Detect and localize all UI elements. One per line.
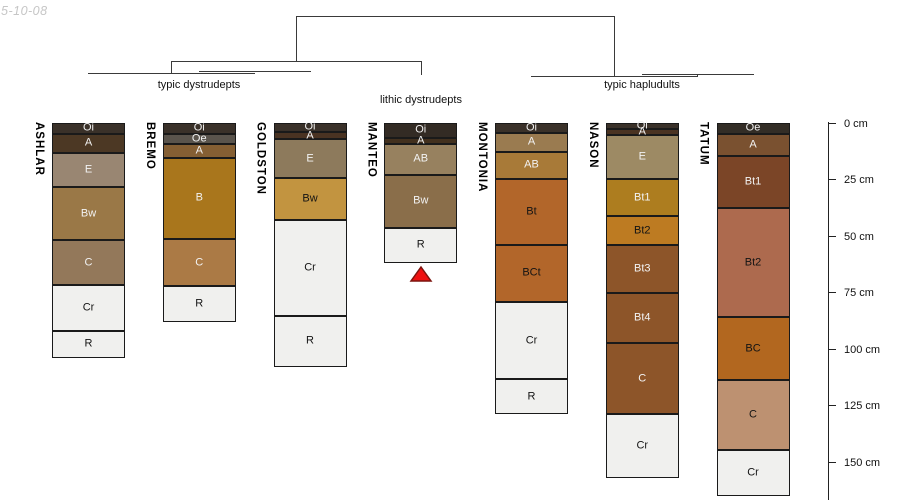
horizon-label: Oi [526, 122, 537, 133]
depth-axis-tick-label: 75 cm [844, 287, 874, 299]
horizon-label: Bt2 [634, 225, 651, 236]
depth-axis-tick-label: 50 cm [844, 231, 874, 243]
group-label-typic-hapludults: typic hapludults [604, 79, 680, 91]
depth-axis-tick [828, 292, 836, 293]
horizon-label: Bw [413, 196, 428, 207]
horizon-label: A [528, 137, 535, 148]
dendrogram-left-cluster-line [171, 61, 422, 62]
horizon-label: Oe [192, 133, 207, 144]
dendrogram-right-vertical [614, 16, 615, 76]
horizon-label: B [196, 193, 203, 204]
depth-axis-tick-label: 0 cm [844, 118, 868, 130]
date-watermark: 5-10-08 [1, 4, 48, 18]
depth-axis-tick [828, 462, 836, 463]
dendrogram-ashlar-merge [88, 73, 255, 74]
horizon-label: Bt2 [745, 257, 762, 268]
horizon-label: E [306, 153, 313, 164]
profile-label-tatum: TATUM [698, 122, 710, 166]
horizon-label: E [639, 151, 646, 162]
horizon-label: C [638, 373, 646, 384]
depth-axis-tick [828, 179, 836, 180]
horizon-label: Oi [83, 123, 94, 134]
horizon-label: Cr [526, 335, 538, 346]
profile-column-manteo: OiAABBwR [384, 123, 457, 263]
profile-column-bremo: OiOeABCR [163, 123, 236, 322]
depth-axis-tick [828, 123, 836, 124]
horizon-label: Cr [747, 468, 759, 479]
horizon-label: C [85, 257, 93, 268]
depth-axis-tick [828, 405, 836, 406]
depth-axis-tick [828, 236, 836, 237]
horizon-label: BC [745, 343, 760, 354]
horizon-label: AB [413, 154, 428, 165]
profile-label-goldston: GOLDSTON [255, 122, 267, 195]
horizon-label: R [85, 339, 93, 350]
horizon-label: E [85, 165, 92, 176]
dendrogram-nt-connector [697, 74, 698, 77]
depth-axis-tick-label: 125 cm [844, 400, 880, 412]
depth-axis-tick-label: 25 cm [844, 174, 874, 186]
profile-label-ashlar: ASHLAR [33, 122, 45, 176]
group-label-typic-dystrudepts: typic dystrudepts [158, 79, 241, 91]
profile-column-montonia: OiAABBtBCtCrR [495, 123, 568, 415]
dendrogram-nason-tatum-merge [642, 74, 754, 75]
profile-label-nason: NASON [587, 122, 599, 169]
horizon-label: A [749, 140, 756, 151]
horizon-label: Bw [81, 208, 96, 219]
depth-axis-tick-label: 100 cm [844, 344, 880, 356]
horizon-label: Bt1 [634, 192, 651, 203]
horizon-label: A [85, 138, 92, 149]
profile-column-tatum: OeABt1Bt2BCCCr [717, 123, 790, 496]
profile-label-manteo: MANTEO [365, 122, 377, 178]
lithic-contact-triangle-icon [409, 265, 433, 283]
horizon-label: Cr [83, 302, 95, 313]
horizon-label: R [306, 336, 314, 347]
group-label-lithic-dystrudepts: lithic dystrudepts [380, 94, 462, 106]
soil-profile-chart: 5-10-08 typic dystrudepts lithic dystrud… [0, 0, 900, 500]
dendrogram-typic-dystrudepts-vertical [171, 61, 172, 73]
horizon-label: Bt4 [634, 313, 651, 324]
horizon-label: C [195, 257, 203, 268]
horizon-label: Bw [302, 193, 317, 204]
horizon-label: Cr [636, 440, 648, 451]
depth-axis-tick [828, 349, 836, 350]
horizon-label: Bt [526, 206, 536, 217]
horizon-label: Cr [304, 262, 316, 273]
profile-label-montonia: MONTONIA [476, 122, 488, 192]
horizon-label: R [528, 391, 536, 402]
dendrogram-lithic-vertical [421, 61, 422, 75]
dendrogram-left-vertical [296, 16, 297, 62]
horizon-label: R [417, 240, 425, 251]
dendrogram-bremo-goldston-merge [199, 71, 311, 72]
dendrogram-root-line [296, 16, 615, 17]
depth-axis-tick-label: 150 cm [844, 457, 880, 469]
horizon-label: R [195, 299, 203, 310]
profile-column-ashlar: OiAEBwCCrR [52, 123, 125, 358]
dendrogram-montonia-merge [531, 76, 698, 77]
horizon-label: Oe [746, 123, 761, 134]
horizon-label: C [749, 410, 757, 421]
profile-label-bremo: BREMO [144, 122, 156, 170]
profile-column-goldston: OiAEBwCrR [274, 123, 347, 367]
horizon-label: AB [524, 160, 539, 171]
horizon-label: Bt1 [745, 177, 762, 188]
horizon-label: A [196, 145, 203, 156]
profile-column-nason: OiAEBt1Bt2Bt3Bt4CCr [606, 123, 679, 478]
horizon-label: BCt [522, 268, 540, 279]
horizon-label: Bt3 [634, 263, 651, 274]
